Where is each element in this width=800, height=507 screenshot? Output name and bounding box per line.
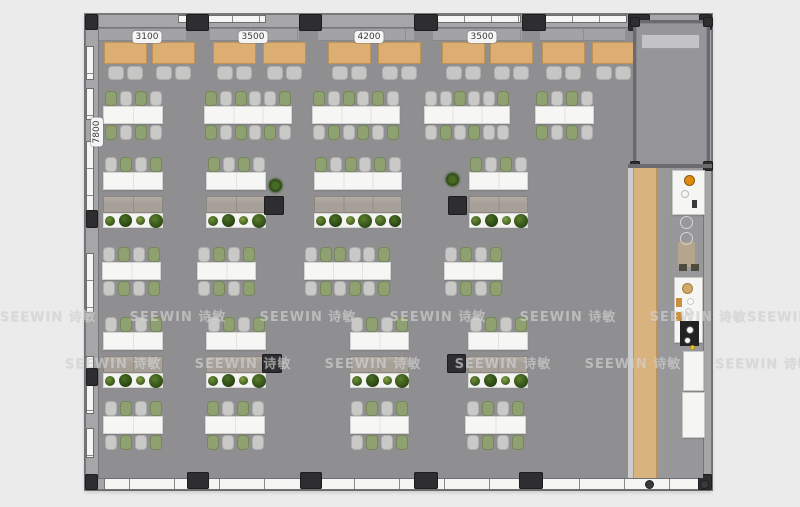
- booth-chair: [546, 66, 562, 80]
- booth-chair: [217, 66, 233, 80]
- desk: [314, 172, 402, 190]
- chair: [105, 401, 117, 416]
- chair: [470, 157, 482, 172]
- chair: [105, 125, 117, 140]
- chair: [483, 91, 495, 106]
- plant: [358, 214, 372, 228]
- desk: [535, 106, 594, 124]
- booth-chair: [127, 66, 143, 80]
- booth-chair: [596, 66, 612, 80]
- pillar: [186, 14, 209, 31]
- chair: [243, 281, 255, 296]
- chair: [366, 435, 378, 450]
- chair: [135, 401, 147, 416]
- booth-chair: [156, 66, 172, 80]
- kitchen-fixture-circle: [690, 345, 695, 350]
- chair: [566, 125, 578, 140]
- plant: [252, 374, 266, 388]
- floor-plant: [443, 170, 462, 189]
- chair: [135, 125, 147, 140]
- chair: [425, 125, 437, 140]
- chair: [220, 91, 232, 106]
- wall-left: [85, 14, 99, 490]
- desk: [350, 416, 409, 434]
- storage-cabinet: [103, 356, 163, 373]
- chair: [363, 247, 375, 262]
- chair: [235, 91, 247, 106]
- chair: [135, 157, 147, 172]
- pillar: [447, 354, 466, 373]
- chair: [512, 401, 524, 416]
- storage-cabinet: [469, 196, 528, 213]
- chair: [213, 247, 225, 262]
- chair: [198, 247, 210, 262]
- chair: [120, 91, 132, 106]
- chair: [252, 401, 264, 416]
- booth-chair: [382, 66, 398, 80]
- chair: [208, 317, 220, 332]
- booth-table: [442, 42, 485, 64]
- chair: [551, 125, 563, 140]
- window: [437, 15, 521, 23]
- kitchen-fixture-circle: [687, 298, 694, 305]
- chair: [343, 125, 355, 140]
- pillar: [85, 474, 98, 490]
- pillar: [85, 14, 98, 30]
- chair: [470, 317, 482, 332]
- chair: [120, 435, 132, 450]
- kitchen-fixture-circle: [685, 308, 692, 315]
- pillar: [299, 14, 322, 31]
- plant: [389, 215, 401, 227]
- desk: [465, 416, 526, 434]
- desk: [444, 262, 503, 280]
- plant: [471, 216, 481, 226]
- chair: [475, 281, 487, 296]
- chair: [237, 435, 249, 450]
- chair: [330, 157, 342, 172]
- desk: [103, 416, 163, 434]
- chair: [105, 435, 117, 450]
- chair: [536, 91, 548, 106]
- chair: [334, 247, 346, 262]
- plant: [222, 374, 235, 387]
- chair: [148, 247, 160, 262]
- booth-chair: [286, 66, 302, 80]
- desk: [197, 262, 256, 280]
- kitchen-fixture: [691, 264, 699, 271]
- dimension-label: 3100: [133, 31, 162, 43]
- room-corner-post: [630, 17, 640, 27]
- chair: [357, 125, 369, 140]
- storage-cabinet: [314, 196, 402, 213]
- pillar: [262, 354, 282, 373]
- watermark-text: SEEWIN 诗敏: [747, 306, 800, 325]
- chair: [135, 91, 147, 106]
- chair: [150, 157, 162, 172]
- chair: [150, 125, 162, 140]
- chair: [490, 247, 502, 262]
- floor-plan: 31003500420035007800: [85, 14, 712, 490]
- storage-cabinet: [206, 356, 266, 373]
- chair: [222, 401, 234, 416]
- chair: [497, 91, 509, 106]
- chair: [454, 91, 466, 106]
- plant: [514, 214, 528, 228]
- booth-chair: [332, 66, 348, 80]
- desk: [206, 332, 266, 350]
- chair: [103, 281, 115, 296]
- chair: [515, 157, 527, 172]
- window: [86, 88, 94, 120]
- chair: [238, 317, 250, 332]
- plant: [514, 374, 528, 388]
- booth-table: [542, 42, 585, 64]
- chair: [581, 125, 593, 140]
- plant: [502, 216, 511, 225]
- chair: [279, 91, 291, 106]
- plant: [105, 216, 115, 226]
- chair: [468, 125, 480, 140]
- plant: [105, 376, 115, 386]
- booth-table: [592, 42, 635, 64]
- chair: [482, 401, 494, 416]
- chair: [581, 91, 593, 106]
- chair: [334, 281, 346, 296]
- booth-chair: [108, 66, 124, 80]
- chair: [305, 281, 317, 296]
- chair: [351, 435, 363, 450]
- chair: [343, 91, 355, 106]
- plant: [136, 376, 145, 385]
- chair: [150, 435, 162, 450]
- floor-plan-canvas: 31003500420035007800 SEEWIN 诗敏SEEWIN 诗敏S…: [0, 0, 800, 507]
- dimension-label: 7800: [91, 118, 103, 147]
- booth-table: [378, 42, 421, 64]
- pillar: [264, 196, 284, 215]
- plant: [252, 214, 266, 228]
- chair: [349, 281, 361, 296]
- chair: [396, 317, 408, 332]
- chair: [220, 125, 232, 140]
- chair: [305, 247, 317, 262]
- plant: [149, 374, 163, 388]
- chair: [372, 91, 384, 106]
- pillar: [448, 196, 467, 215]
- storage-cabinet: [350, 356, 409, 373]
- plant: [208, 216, 218, 226]
- chair: [237, 401, 249, 416]
- plant: [395, 374, 409, 388]
- chair: [222, 435, 234, 450]
- chair: [372, 125, 384, 140]
- chair: [315, 157, 327, 172]
- plant: [485, 214, 498, 227]
- chair: [205, 91, 217, 106]
- chair: [253, 317, 265, 332]
- chair: [118, 281, 130, 296]
- booth-table: [213, 42, 256, 64]
- chair: [389, 157, 401, 172]
- pillar: [187, 472, 209, 489]
- desk: [312, 106, 400, 124]
- chair: [264, 91, 276, 106]
- chair: [351, 401, 363, 416]
- chair: [208, 157, 220, 172]
- booth-chair: [236, 66, 252, 80]
- chair: [378, 247, 390, 262]
- chair: [148, 281, 160, 296]
- dimension-label: 4200: [355, 31, 384, 43]
- chair: [118, 247, 130, 262]
- chair: [135, 317, 147, 332]
- chair: [328, 125, 340, 140]
- kitchen-fixture-circle: [645, 480, 654, 489]
- plant: [366, 374, 379, 387]
- plant: [484, 374, 497, 387]
- chair: [345, 157, 357, 172]
- desk: [350, 332, 409, 350]
- chair: [133, 247, 145, 262]
- plant: [470, 376, 480, 386]
- kitchen-fixture-circle: [700, 480, 709, 489]
- desk: [304, 262, 391, 280]
- booth-chair: [615, 66, 631, 80]
- booth-table: [263, 42, 306, 64]
- chair: [223, 317, 235, 332]
- chair: [249, 91, 261, 106]
- watermark-text: SEEWIN 诗敏: [0, 306, 96, 325]
- booth-table: [152, 42, 195, 64]
- chair: [512, 435, 524, 450]
- chair: [228, 247, 240, 262]
- chair: [454, 125, 466, 140]
- chair: [120, 125, 132, 140]
- chair: [359, 157, 371, 172]
- plant: [208, 376, 218, 386]
- chair: [207, 435, 219, 450]
- pillar: [519, 472, 543, 489]
- booth-chair: [494, 66, 510, 80]
- booth-chair: [267, 66, 283, 80]
- chair: [328, 91, 340, 106]
- chair: [500, 317, 512, 332]
- booth-table: [104, 42, 147, 64]
- chair: [497, 435, 509, 450]
- chair: [351, 317, 363, 332]
- booth-chair: [175, 66, 191, 80]
- chair: [515, 317, 527, 332]
- kitchen-counter-panel: [683, 351, 704, 391]
- watermark-text: SEEWIN 诗敏: [715, 353, 800, 372]
- chair: [475, 247, 487, 262]
- kitchen-fixture-circle: [681, 190, 689, 198]
- meeting-room-credenza: [641, 34, 700, 49]
- chair: [497, 125, 509, 140]
- chair: [150, 401, 162, 416]
- chair: [490, 281, 502, 296]
- desk: [206, 172, 266, 190]
- chair: [445, 247, 457, 262]
- desk: [103, 106, 163, 124]
- booth-chair: [513, 66, 529, 80]
- chair: [150, 91, 162, 106]
- window: [86, 428, 94, 458]
- chair: [485, 317, 497, 332]
- booth-table: [490, 42, 533, 64]
- chair: [460, 247, 472, 262]
- kitchen-fixture-circle: [684, 337, 691, 344]
- chair: [357, 91, 369, 106]
- storage-cabinet: [103, 196, 163, 213]
- chair: [120, 317, 132, 332]
- chair: [381, 401, 393, 416]
- dimension-label: 3500: [239, 31, 268, 43]
- chair: [387, 91, 399, 106]
- desk: [468, 332, 528, 350]
- chair: [205, 125, 217, 140]
- chair: [105, 157, 117, 172]
- room-corner-post: [703, 17, 713, 27]
- dimension-label: 3500: [468, 31, 497, 43]
- kitchen-fixture-circle: [680, 216, 693, 229]
- chair: [279, 125, 291, 140]
- chair: [243, 247, 255, 262]
- kitchen-fixture-circle: [682, 283, 693, 294]
- chair: [366, 317, 378, 332]
- chair: [105, 91, 117, 106]
- chair: [213, 281, 225, 296]
- kitchen-fixture: [679, 264, 687, 271]
- chair: [207, 401, 219, 416]
- kitchen-fixture: [692, 200, 697, 208]
- chair: [387, 125, 399, 140]
- booth-chair: [446, 66, 462, 80]
- chair: [198, 281, 210, 296]
- chair: [483, 125, 495, 140]
- booth-chair: [351, 66, 367, 80]
- chair: [396, 401, 408, 416]
- chair: [120, 401, 132, 416]
- chair: [133, 281, 145, 296]
- kitchen-fixture-circle: [680, 232, 693, 245]
- plant: [346, 216, 355, 225]
- storage-cabinet: [206, 196, 266, 213]
- chair: [485, 157, 497, 172]
- chair: [378, 281, 390, 296]
- plant: [239, 216, 248, 225]
- plant: [222, 214, 235, 227]
- chair: [467, 401, 479, 416]
- chair: [374, 157, 386, 172]
- chair: [425, 91, 437, 106]
- chair: [500, 157, 512, 172]
- pillar: [522, 14, 546, 31]
- plant: [375, 215, 386, 226]
- plant: [239, 376, 248, 385]
- kitchen-fixture-circle: [686, 326, 694, 334]
- chair: [253, 157, 265, 172]
- kitchen-counter-panel: [682, 392, 705, 438]
- pillar: [300, 472, 322, 489]
- chair: [566, 91, 578, 106]
- booth-chair: [401, 66, 417, 80]
- floor-plant: [266, 176, 285, 195]
- chair: [120, 157, 132, 172]
- chair: [497, 401, 509, 416]
- plant: [316, 216, 326, 226]
- pillar: [414, 472, 438, 489]
- wall-bottom-window-band: [85, 478, 712, 490]
- chair: [440, 125, 452, 140]
- chair: [468, 91, 480, 106]
- desk: [103, 172, 163, 190]
- desk: [469, 172, 528, 190]
- chair: [252, 435, 264, 450]
- kitchen-fixture: [676, 312, 682, 321]
- chair: [467, 435, 479, 450]
- chair: [482, 435, 494, 450]
- plant: [501, 376, 510, 385]
- pillar: [86, 210, 98, 228]
- kitchen-fixture-circle: [684, 175, 695, 186]
- booth-chair: [565, 66, 581, 80]
- pillar: [414, 14, 438, 31]
- chair: [249, 125, 261, 140]
- corridor-wood-floor: [633, 168, 657, 478]
- plant: [149, 214, 163, 228]
- desk: [205, 416, 265, 434]
- chair: [536, 125, 548, 140]
- chair: [238, 157, 250, 172]
- window: [86, 141, 94, 213]
- booth-chair: [465, 66, 481, 80]
- chair: [366, 401, 378, 416]
- chair: [320, 247, 332, 262]
- plant: [383, 376, 392, 385]
- desk: [424, 106, 510, 124]
- chair: [363, 281, 375, 296]
- desk: [204, 106, 292, 124]
- chair: [103, 247, 115, 262]
- plant: [136, 216, 145, 225]
- chair: [396, 435, 408, 450]
- chair: [551, 91, 563, 106]
- chair: [313, 91, 325, 106]
- chair: [440, 91, 452, 106]
- plant: [119, 374, 132, 387]
- pillar: [86, 368, 98, 386]
- window: [86, 253, 94, 313]
- plant: [119, 214, 132, 227]
- chair: [228, 281, 240, 296]
- chair: [135, 435, 147, 450]
- chair: [349, 247, 361, 262]
- chair: [105, 317, 117, 332]
- desk: [103, 332, 163, 350]
- storage-cabinet: [468, 356, 528, 373]
- chair: [320, 281, 332, 296]
- chair: [381, 317, 393, 332]
- booth-bench: [540, 28, 625, 41]
- chair: [460, 281, 472, 296]
- plant: [329, 214, 342, 227]
- chair: [223, 157, 235, 172]
- booth-table: [328, 42, 371, 64]
- chair: [313, 125, 325, 140]
- kitchen-fixture: [676, 298, 682, 307]
- chair: [235, 125, 247, 140]
